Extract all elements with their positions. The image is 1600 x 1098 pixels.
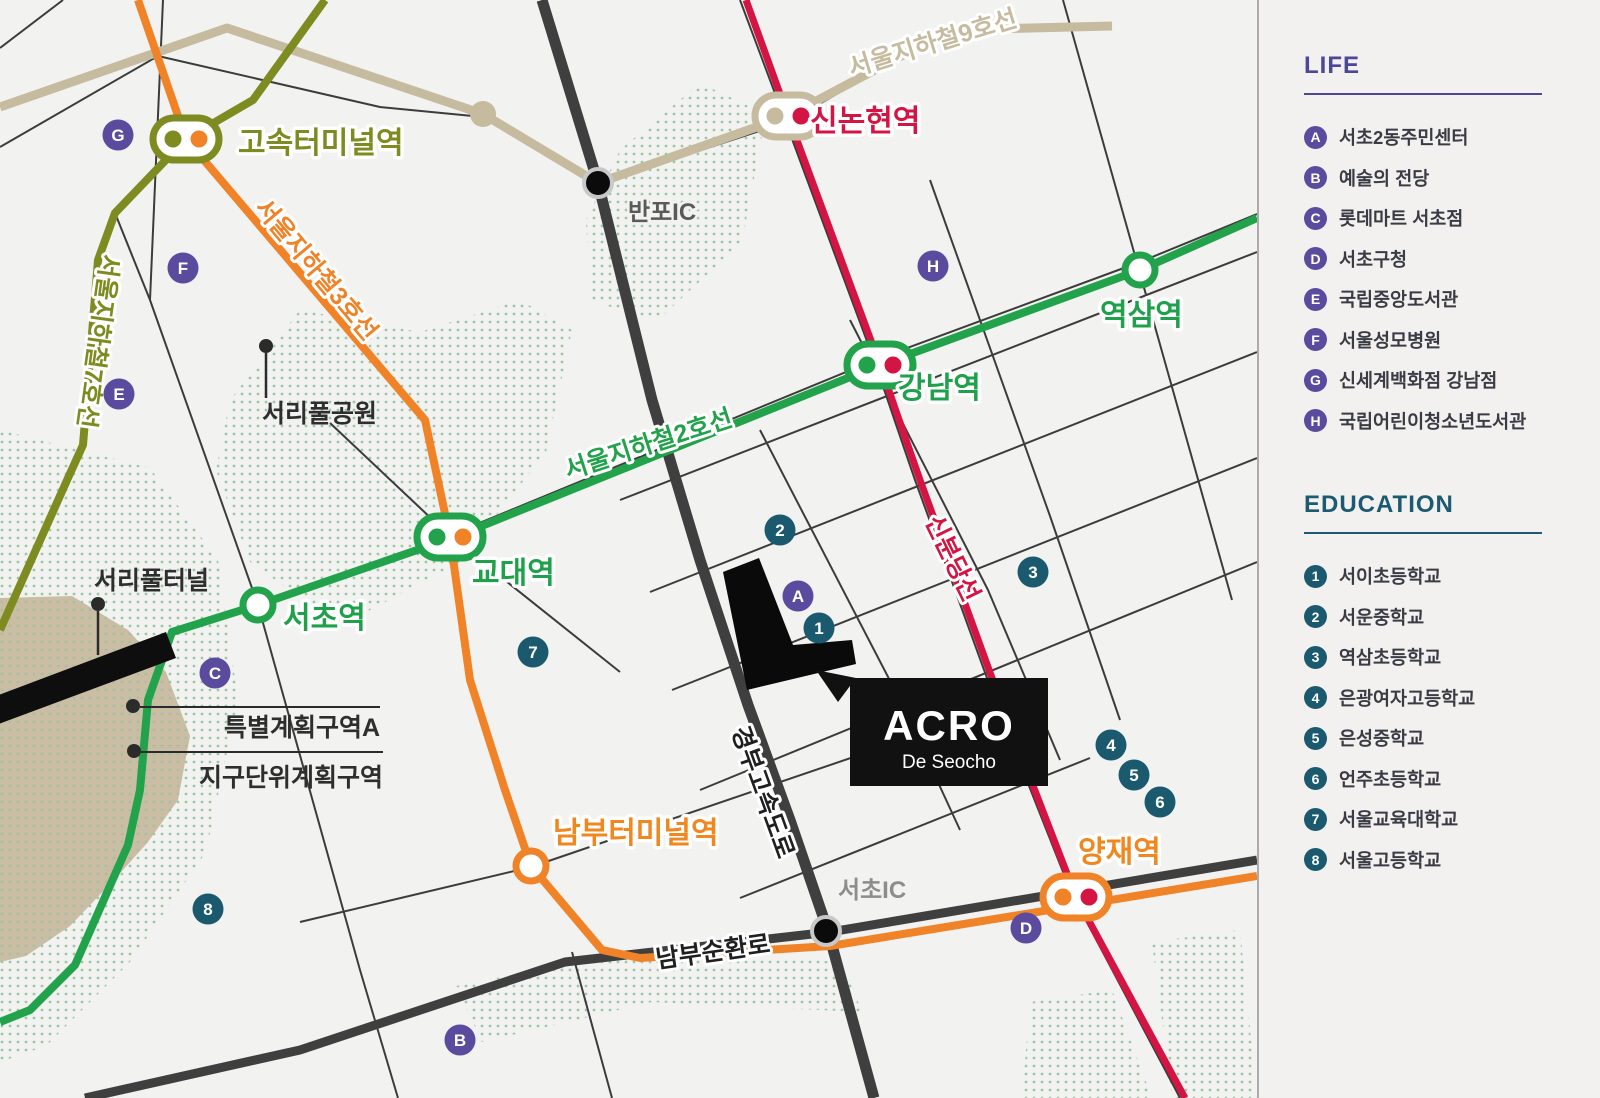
nambu-terminal-marker bbox=[516, 851, 546, 881]
legend-sidebar: LIFE A서초2동주민센터 B예술의 전당 C롯데마트 서초점 D서초구청 E… bbox=[1257, 0, 1600, 1098]
legend-item-4: 4은광여자고등학교 bbox=[1304, 678, 1600, 719]
map-marker-H: H bbox=[918, 251, 949, 282]
svg-text:E: E bbox=[113, 385, 124, 404]
seocho-ic-marker bbox=[812, 917, 840, 945]
yangjae-label: 양재역 bbox=[1078, 836, 1161, 869]
badge-G: G bbox=[1304, 369, 1327, 392]
nambu-terminal-label: 남부터미널역 bbox=[553, 817, 719, 850]
acro-callout: ACRO De Seocho bbox=[816, 670, 1048, 786]
svg-text:5: 5 bbox=[1129, 766, 1138, 785]
badge-B: B bbox=[1304, 166, 1327, 189]
legend-item-5: 5은성중학교 bbox=[1304, 718, 1600, 759]
life-items: A서초2동주민센터 B예술의 전당 C롯데마트 서초점 D서초구청 E국립중앙도… bbox=[1304, 117, 1600, 441]
map-marker-7: 7 bbox=[518, 637, 549, 668]
legend-item-E: E국립중앙도서관 bbox=[1304, 279, 1600, 320]
map-marker-5: 5 bbox=[1119, 760, 1150, 791]
badge-5: 5 bbox=[1304, 727, 1327, 750]
map-marker-B: B bbox=[445, 1025, 476, 1056]
badge-1: 1 bbox=[1304, 565, 1327, 588]
gangnam-label: 강남역 bbox=[898, 372, 981, 405]
svg-text:2: 2 bbox=[775, 521, 784, 540]
legend-item-7: 7서울교육대학교 bbox=[1304, 799, 1600, 840]
map-marker-A: A bbox=[783, 581, 814, 612]
education-section: EDUCATION 1서이초등학교 2서운중학교 3역삼초등학교 4은광여자고등… bbox=[1304, 491, 1600, 880]
map-marker-8: 8 bbox=[193, 894, 224, 925]
badge-2: 2 bbox=[1304, 605, 1327, 628]
badge-A: A bbox=[1304, 126, 1327, 149]
map-marker-1: 1 bbox=[804, 613, 835, 644]
badge-C: C bbox=[1304, 207, 1327, 230]
map-marker-F: F bbox=[168, 253, 199, 284]
map-marker-C: C bbox=[200, 658, 231, 689]
line9-intermediate-station bbox=[470, 101, 496, 127]
education-items: 1서이초등학교 2서운중학교 3역삼초등학교 4은광여자고등학교 5은성중학교 … bbox=[1304, 556, 1600, 880]
map-marker-G: G bbox=[103, 120, 134, 151]
map-marker-D: D bbox=[1011, 913, 1042, 944]
life-title: LIFE bbox=[1304, 52, 1600, 80]
seocho-ic-label: 서초IC bbox=[838, 877, 906, 904]
svg-text:H: H bbox=[927, 257, 939, 276]
map-marker-4: 4 bbox=[1096, 730, 1127, 761]
yeoksam-marker bbox=[1125, 255, 1155, 285]
location-map-page: ACRO De Seocho 서울지하철9호선 서울지하철7호선 서울지하철3호… bbox=[0, 0, 1600, 1098]
acro-subtitle: De Seocho bbox=[902, 752, 996, 773]
map-marker-E: E bbox=[104, 379, 135, 410]
education-title: EDUCATION bbox=[1304, 491, 1600, 519]
svg-text:D: D bbox=[1020, 919, 1032, 938]
badge-4: 4 bbox=[1304, 686, 1327, 709]
legend-item-A: A서초2동주민센터 bbox=[1304, 117, 1600, 158]
special-district-label: 특별계획구역A bbox=[224, 714, 380, 742]
legend-item-3: 3역삼초등학교 bbox=[1304, 637, 1600, 678]
map-canvas: ACRO De Seocho 서울지하철9호선 서울지하철7호선 서울지하철3호… bbox=[0, 0, 1257, 1098]
acro-title: ACRO bbox=[883, 702, 1015, 749]
svg-text:8: 8 bbox=[203, 900, 212, 919]
legend-item-D: D서초구청 bbox=[1304, 239, 1600, 280]
svg-text:G: G bbox=[111, 126, 124, 145]
svg-text:B: B bbox=[454, 1031, 466, 1050]
life-divider bbox=[1304, 93, 1542, 95]
banpo-ic-marker bbox=[584, 169, 612, 197]
legend-item-H: H국립어린이청소년도서관 bbox=[1304, 401, 1600, 442]
svg-text:A: A bbox=[792, 587, 804, 606]
legend-item-G: G신세계백화점 강남점 bbox=[1304, 360, 1600, 401]
badge-3: 3 bbox=[1304, 646, 1327, 669]
gyodae-marker bbox=[417, 516, 483, 558]
svg-text:1: 1 bbox=[814, 619, 823, 638]
map-marker-6: 6 bbox=[1145, 787, 1176, 818]
seoripul-tunnel-label: 서리풀터널 bbox=[94, 567, 209, 595]
svg-text:4: 4 bbox=[1106, 736, 1116, 755]
svg-text:7: 7 bbox=[528, 643, 537, 662]
seoripul-park-label: 서리풀공원 bbox=[262, 400, 377, 428]
legend-item-2: 2서운중학교 bbox=[1304, 597, 1600, 638]
map-marker-3: 3 bbox=[1018, 557, 1049, 588]
svg-text:3: 3 bbox=[1028, 563, 1037, 582]
district-unit-plan-label: 지구단위계획구역 bbox=[199, 764, 383, 792]
yeoksam-label: 역삼역 bbox=[1100, 299, 1183, 332]
legend-item-F: F서울성모병원 bbox=[1304, 320, 1600, 361]
svg-text:C: C bbox=[209, 664, 221, 683]
legend-item-8: 8서울고등학교 bbox=[1304, 840, 1600, 881]
legend-item-B: B예술의 전당 bbox=[1304, 158, 1600, 199]
badge-8: 8 bbox=[1304, 848, 1327, 871]
map-marker-2: 2 bbox=[765, 515, 796, 546]
badge-F: F bbox=[1304, 328, 1327, 351]
education-divider bbox=[1304, 532, 1542, 534]
seocho-label: 서초역 bbox=[283, 602, 366, 635]
yangjae-marker bbox=[1043, 876, 1109, 918]
legend-item-C: C롯데마트 서초점 bbox=[1304, 198, 1600, 239]
badge-6: 6 bbox=[1304, 767, 1327, 790]
svg-text:6: 6 bbox=[1155, 793, 1164, 812]
seocho-marker bbox=[243, 590, 273, 620]
svg-text:F: F bbox=[178, 259, 188, 278]
express-terminal-label: 고속터미널역 bbox=[238, 127, 404, 160]
badge-H: H bbox=[1304, 409, 1327, 432]
gyodae-label: 교대역 bbox=[472, 557, 555, 590]
life-section: LIFE A서초2동주민센터 B예술의 전당 C롯데마트 서초점 D서초구청 E… bbox=[1304, 52, 1600, 441]
badge-D: D bbox=[1304, 247, 1327, 270]
banpo-ic-label: 반포IC bbox=[628, 199, 696, 226]
legend-item-6: 6언주초등학교 bbox=[1304, 759, 1600, 800]
badge-E: E bbox=[1304, 288, 1327, 311]
sinnonhyeon-label: 신논현역 bbox=[810, 105, 920, 138]
legend-item-1: 1서이초등학교 bbox=[1304, 556, 1600, 597]
badge-7: 7 bbox=[1304, 808, 1327, 831]
express-terminal-marker bbox=[153, 118, 219, 160]
